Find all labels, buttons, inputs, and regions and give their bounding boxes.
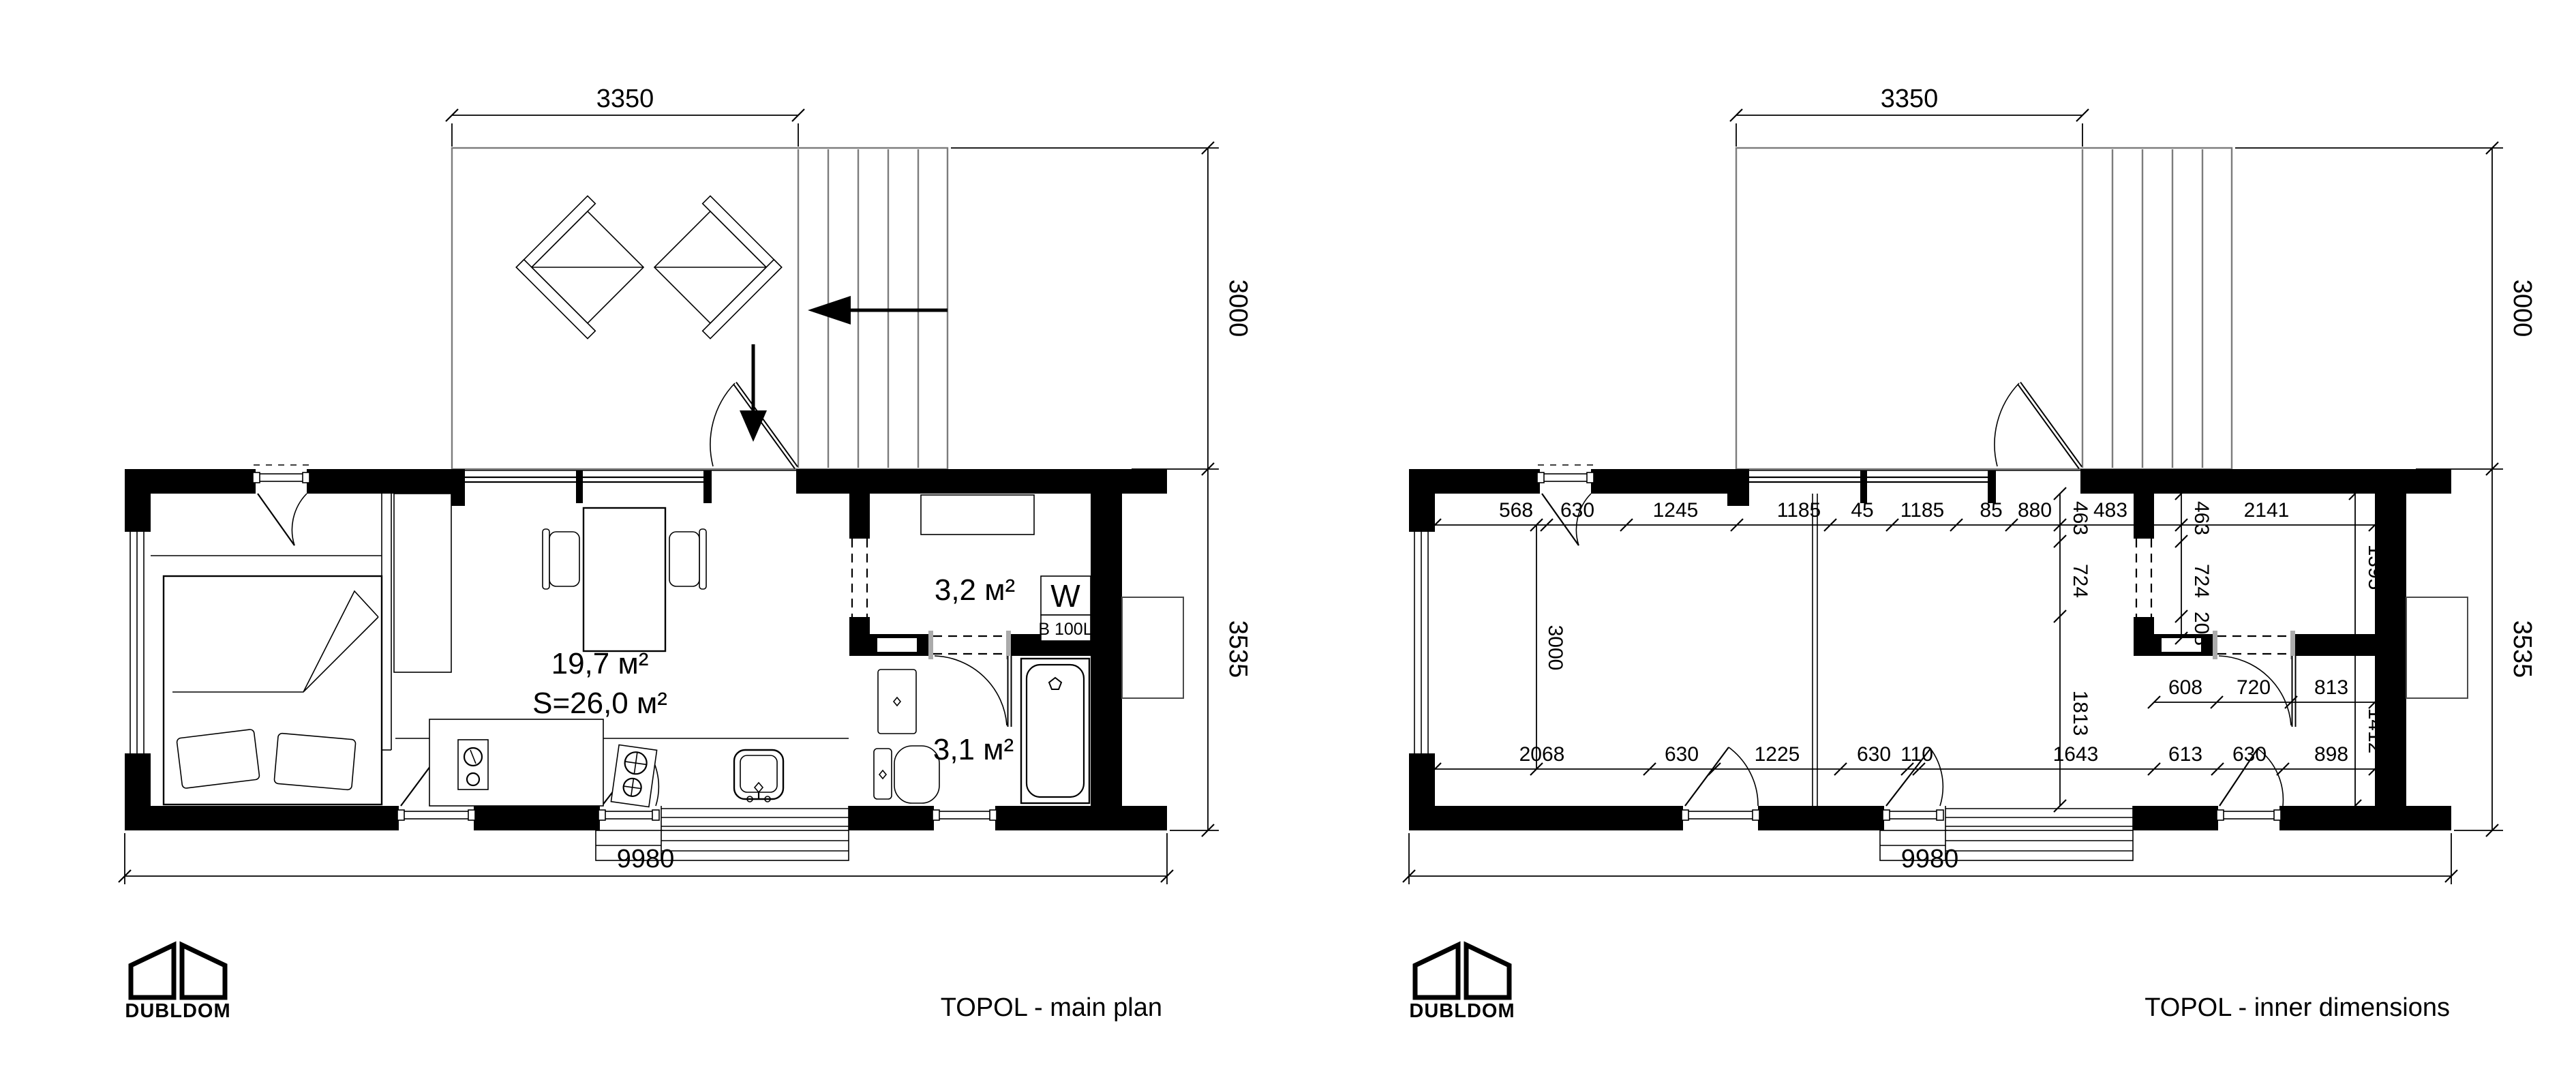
dim-bot-4: 110: [1900, 743, 1933, 766]
living-area-label: 19,7 м²: [551, 647, 649, 680]
dim-bot-5: 1643: [2053, 743, 2099, 766]
bathtub-icon: [1021, 659, 1089, 803]
dim-lv-2: 1813: [2069, 691, 2091, 736]
toilet-icon: [874, 746, 939, 803]
bath-area-label: 3,1 м²: [933, 733, 1014, 766]
dim-bt-1: 720: [2237, 676, 2271, 699]
dim-bt-0: 608: [2168, 676, 2202, 699]
hall-area-label: 3,2 м²: [935, 573, 1015, 607]
dim-room-width: 3000: [1544, 625, 1566, 671]
dim-terrace-depth: 3000: [1224, 280, 1252, 337]
dim-house-depth: 3535: [2508, 620, 2536, 678]
kitchen-block-icon: [429, 719, 603, 806]
dim-house-depth: 3535: [1224, 620, 1252, 678]
dim-top-3: 1185: [1777, 499, 1821, 522]
stove-icon: [611, 745, 656, 807]
dim-bot-0: 2068: [1519, 743, 1565, 766]
dim-bb-0: 613: [2168, 743, 2202, 766]
dim-terrace-width: 3350: [1881, 85, 1939, 113]
dim-top-0: 568: [1499, 499, 1533, 522]
right-plan: 3350 3000 3535 9980 568 630: [1403, 85, 2536, 1022]
dim-rv-1: 1412: [2364, 708, 2386, 754]
dim-bot-2: 1225: [1755, 743, 1800, 766]
dim-bb-1: 630: [2232, 743, 2267, 766]
left-plan: 19,7 м² S=26,0 м² 3,2 м² 3,1 м² W B 100L…: [119, 85, 1252, 1022]
dim-rv-0: 1395: [2364, 545, 2386, 590]
dim-top-1: 630: [1560, 499, 1594, 522]
dim-mv-0: 463: [2190, 501, 2213, 535]
dim-bot-3: 630: [1857, 743, 1891, 766]
armchair-icon: [516, 196, 658, 338]
dim-top-6: 85: [1980, 499, 2002, 522]
dim-bb-2: 898: [2314, 743, 2348, 766]
dim-hall-1: 2141: [2244, 499, 2290, 522]
dim-total-width: 9980: [1901, 845, 1959, 873]
total-area-label: S=26,0 м²: [532, 687, 667, 720]
dim-total-width: 9980: [617, 845, 675, 873]
dim-terrace-depth: 3000: [2508, 280, 2536, 337]
dim-mv-1: 724: [2190, 564, 2213, 598]
dim-hall-0: 483: [2093, 499, 2127, 522]
left-plan-title: TOPOL - main plan: [941, 993, 1162, 1022]
right-plan-title: TOPOL - inner dimensions: [2145, 993, 2450, 1022]
dim-top-2: 1245: [1653, 499, 1699, 522]
wardrobe-icon: [921, 495, 1034, 535]
dim-lv-0: 463: [2069, 501, 2091, 535]
table-icon: [584, 508, 665, 651]
dim-bt-2: 813: [2314, 676, 2348, 699]
bedroom-partition: [382, 494, 391, 750]
dim-mv-2: 208: [2190, 612, 2213, 646]
chair-icon: [669, 529, 706, 589]
dim-bot-1: 630: [1665, 743, 1699, 766]
boiler-volume-label: B 100L: [1038, 620, 1092, 639]
dim-top-5: 1185: [1900, 499, 1945, 522]
tall-cabinet-icon: [394, 494, 451, 672]
dim-top-4: 45: [1851, 499, 1873, 522]
boiler-label: W: [1050, 578, 1080, 614]
floorplan-sheet: { "logo": { "name": "DUBLDOM" }, "left":…: [0, 0, 2576, 1082]
sink-icon: [734, 750, 783, 802]
armchair-icon: [639, 196, 781, 338]
partition-45: [1813, 494, 1817, 806]
dim-lv-1: 724: [2069, 564, 2091, 598]
bed-icon: [164, 576, 382, 805]
dim-terrace-width: 3350: [596, 85, 654, 113]
washing-machine-icon: [878, 670, 916, 734]
dim-top-7: 880: [2018, 499, 2052, 522]
chair-icon: [543, 529, 579, 589]
